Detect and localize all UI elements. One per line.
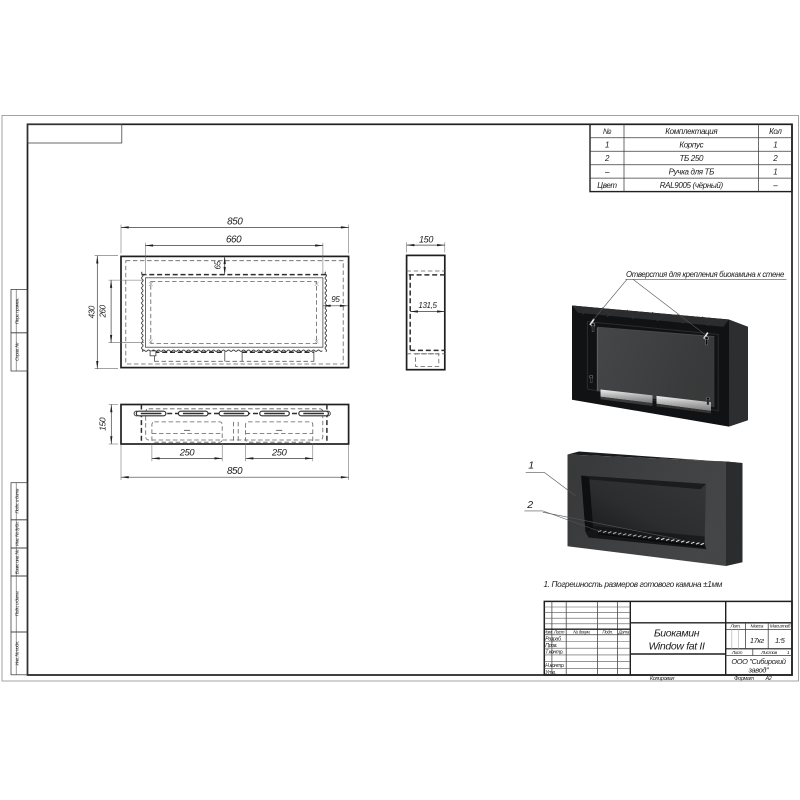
svg-text:Листов: Листов xyxy=(760,650,778,656)
svg-text:А2: А2 xyxy=(764,676,771,682)
svg-text:260: 260 xyxy=(99,304,108,318)
svg-text:1: 1 xyxy=(528,460,534,472)
svg-text:Лит.: Лит. xyxy=(729,624,740,630)
svg-text:131,5: 131,5 xyxy=(418,301,437,310)
svg-text:Лист: Лист xyxy=(731,650,743,655)
svg-text:2: 2 xyxy=(772,154,778,163)
svg-text:660: 660 xyxy=(226,235,242,246)
svg-text:Инв. № подл.: Инв. № подл. xyxy=(14,641,19,665)
svg-text:1: 1 xyxy=(773,141,777,150)
svg-text:Комплектация: Комплектация xyxy=(665,127,718,136)
svg-text:Кол: Кол xyxy=(769,127,782,136)
svg-text:Формат: Формат xyxy=(734,676,755,682)
svg-text:Биокамин: Биокамин xyxy=(654,627,700,639)
svg-text:1: 1 xyxy=(773,168,777,177)
svg-text:Цвет: Цвет xyxy=(597,181,617,190)
svg-text:Отверстия для крепления биокам: Отверстия для крепления биокамина к стен… xyxy=(626,270,785,279)
svg-text:150: 150 xyxy=(419,234,433,244)
svg-text:Разраб.: Разраб. xyxy=(545,636,562,642)
svg-text:Т.контр.: Т.контр. xyxy=(545,650,563,656)
svg-text:Изм.: Изм. xyxy=(544,630,552,635)
svg-text:RAL9005 (чёрный): RAL9005 (чёрный) xyxy=(660,181,724,190)
svg-text:430: 430 xyxy=(87,305,96,318)
svg-text:65: 65 xyxy=(214,260,223,269)
svg-text:Перв. примен.: Перв. примен. xyxy=(14,298,19,324)
svg-text:2: 2 xyxy=(604,154,610,163)
svg-text:1: 1 xyxy=(605,141,609,150)
svg-text:–: – xyxy=(604,168,610,177)
svg-text:Лист: Лист xyxy=(553,630,565,635)
svg-text:850: 850 xyxy=(227,466,243,477)
svg-text:17кг: 17кг xyxy=(750,636,765,645)
svg-text:Взам. инв. №: Взам. инв. № xyxy=(14,550,19,575)
svg-text:Масштаб: Масштаб xyxy=(770,624,791,630)
svg-text:Пров.: Пров. xyxy=(545,643,557,649)
svg-text:250: 250 xyxy=(179,447,196,457)
svg-text:Инв. № дубл.: Инв. № дубл. xyxy=(14,522,19,546)
svg-text:Н.контр.: Н.контр. xyxy=(545,663,564,669)
svg-text:ТБ 250: ТБ 250 xyxy=(680,154,704,163)
svg-text:150: 150 xyxy=(98,417,108,431)
svg-text:Копировал: Копировал xyxy=(650,676,674,682)
svg-text:1. Погрешность размеров готово: 1. Погрешность размеров готового камина … xyxy=(544,580,723,589)
svg-text:Масса: Масса xyxy=(750,624,763,630)
svg-text:Дата: Дата xyxy=(618,630,630,635)
svg-text:Подп. и дата: Подп. и дата xyxy=(14,488,19,513)
svg-text:№ докум.: № докум. xyxy=(573,630,590,635)
svg-text:850: 850 xyxy=(227,217,243,228)
svg-text:–: – xyxy=(772,181,778,190)
svg-text:завод": завод" xyxy=(748,665,770,674)
svg-text:2: 2 xyxy=(526,499,533,511)
svg-text:Window fat II: Window fat II xyxy=(648,641,704,653)
svg-text:Подп.: Подп. xyxy=(602,630,612,635)
svg-text:№: № xyxy=(603,127,612,136)
svg-text:250: 250 xyxy=(271,447,288,457)
svg-text:Подп. и дата: Подп. и дата xyxy=(14,591,19,616)
svg-text:1:5: 1:5 xyxy=(775,636,786,645)
svg-text:95: 95 xyxy=(331,295,340,304)
svg-text:Справ. №: Справ. № xyxy=(14,342,19,360)
svg-text:Утв.: Утв. xyxy=(545,670,555,676)
svg-text:Корпус: Корпус xyxy=(679,141,703,150)
svg-text:Ручка для ТБ: Ручка для ТБ xyxy=(669,168,714,177)
